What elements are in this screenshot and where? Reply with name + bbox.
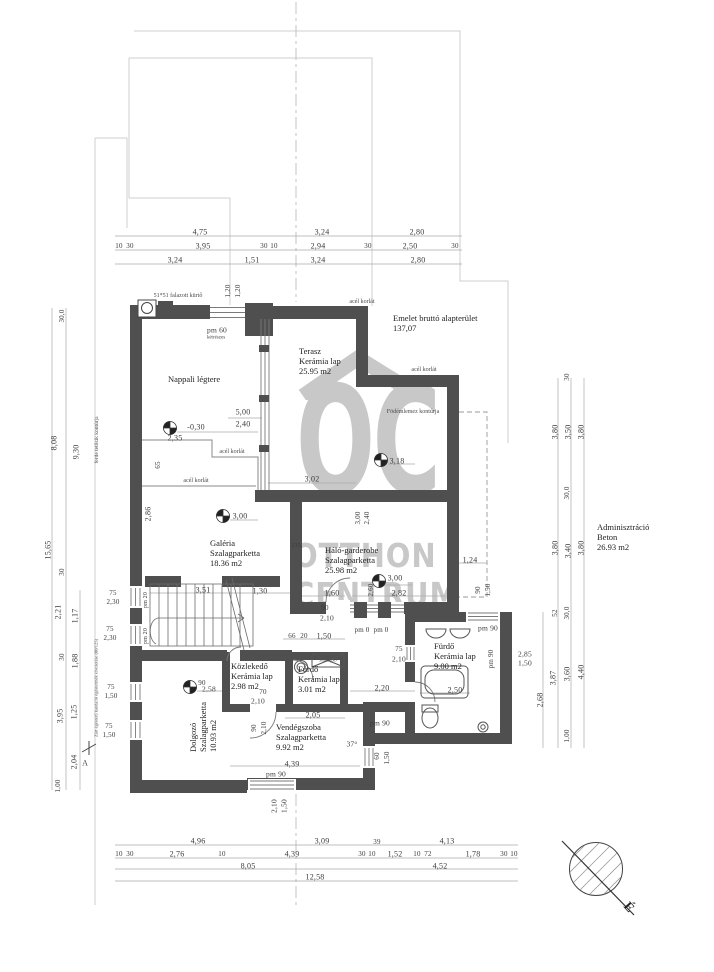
room-label-nappali: Nappali légtere <box>168 374 220 384</box>
dimension-label: 2,50 <box>448 686 463 695</box>
dimension-label: 4,40 <box>577 665 586 680</box>
dimension-label: 1,50 <box>383 751 391 764</box>
dimension-label: 10 <box>115 242 122 250</box>
dimension-label: 3,18 <box>390 457 405 466</box>
dimension-label: 2,05 <box>306 711 321 720</box>
dimension-label: 3,40 <box>564 544 573 559</box>
dimension-label: 15,65 <box>44 541 53 560</box>
sink-icon <box>426 629 446 638</box>
dimension-label: 2,10 <box>320 614 334 623</box>
dimension-label: 2,86 <box>144 507 153 522</box>
dimension-label: 2,80 <box>411 256 426 265</box>
dimension-label: 4,39 <box>285 760 300 769</box>
dimension-label: 10 <box>413 850 420 858</box>
dimension-label: 75 <box>109 589 116 597</box>
annotation-label: A <box>82 759 88 768</box>
dimension-label: 30 <box>500 850 507 858</box>
area-summary: Emelet bruttó alapterület 137,07 <box>393 313 478 333</box>
dimension-label: 4,96 <box>191 837 206 846</box>
dimension-label: 66 <box>288 632 295 640</box>
dimension-label: 72 <box>424 850 431 858</box>
dimension-label: 3,00 <box>388 574 403 583</box>
dimension-label: 75 <box>107 683 114 691</box>
annotation-label: acél korlát <box>183 478 208 484</box>
dimension-label: 2,30 <box>103 634 116 642</box>
dimension-label: 2,50 <box>403 242 418 251</box>
dimension-label: 3,87 <box>549 671 558 686</box>
dimension-label: 30 <box>260 242 267 250</box>
dimension-label: 8,08 <box>50 436 59 451</box>
dimension-label: 3,50 <box>564 425 573 440</box>
dimension-label: 3,09 <box>315 837 330 846</box>
dimension-label: 90 <box>250 724 258 731</box>
dimension-label: 30 <box>364 242 371 250</box>
dimension-label: 1,24 <box>463 556 478 565</box>
annotation-label: acél korlát <box>219 449 244 455</box>
dimension-label: pm 90 <box>370 719 390 728</box>
dimension-label: 30 <box>358 850 365 858</box>
dimension-label: 1,00 <box>563 729 571 742</box>
dimension-label: 30 <box>563 373 571 380</box>
dimension-label: 65 <box>154 461 162 468</box>
dimension-label: 39 <box>373 838 380 846</box>
floor-plan-page: OC OTTHON CENTRUM <box>0 0 714 972</box>
room-label-halo: Háló-garderobe Szalagparketta 25.98 m2 <box>325 545 378 575</box>
annotation-label: acél korlát <box>411 367 436 373</box>
dimension-label: 2,35 <box>168 434 183 443</box>
dimension-label: 4,75 <box>193 228 208 237</box>
dimension-label: 1,51 <box>245 256 260 265</box>
dimension-label: 30 <box>58 653 66 660</box>
room-label-furdo-small: Fürdő Kerámia lap 3.01 m2 <box>298 664 340 694</box>
slab-contour-dashed <box>459 412 487 597</box>
dimension-label: 5,00 <box>236 408 251 417</box>
dimension-label: 10 <box>510 850 517 858</box>
dimension-label: pm 90 <box>266 770 286 779</box>
dimension-label: 3,80 <box>577 541 586 556</box>
dimension-label: 1,78 <box>466 850 481 859</box>
dimension-label: 2,10 <box>251 697 265 706</box>
dimension-label: 1,17 <box>71 609 80 624</box>
floor-plan-drawing <box>0 0 714 972</box>
dimension-label: 3,24 <box>311 256 326 265</box>
dimension-label: 1,30 <box>253 587 268 596</box>
dimension-label: 1,20 <box>224 284 232 297</box>
dimension-label: 2,58 <box>202 685 216 694</box>
dimension-label: 3,02 <box>305 475 320 484</box>
dimension-label: 75 <box>395 645 402 653</box>
dimension-label: 3,24 <box>168 256 183 265</box>
dimension-label: 135 <box>291 543 301 549</box>
dimension-label: pm 20 <box>143 628 149 644</box>
dimension-label: 3,51 <box>196 586 211 595</box>
dimension-label: 75 <box>106 625 113 633</box>
dimension-label: 3,80 <box>551 541 560 556</box>
dimension-label: 3,95 <box>196 242 211 251</box>
dimension-label: 1,50 <box>317 632 332 641</box>
dimension-label: 30,0 <box>563 486 571 499</box>
dimension-label: 4,39 <box>285 850 300 859</box>
dimension-label: 3,95 <box>56 709 65 724</box>
annotation-label: 51*51 falazott kürtő <box>154 293 203 299</box>
dimension-label: 30 <box>126 242 133 250</box>
dimension-label: 3,00 <box>354 511 362 524</box>
dimension-label: 2,82 <box>392 589 407 598</box>
dimension-label: 10 <box>368 850 375 858</box>
dimension-label: 2,94 <box>311 242 326 251</box>
room-label-galeria: Galéria Szalagparketta 18.36 m2 <box>210 538 260 568</box>
room-label-vendegszoba: Vendégszoba Szalagparketta 9.92 m2 <box>276 722 326 752</box>
dimension-label: 2,40 <box>363 511 371 524</box>
dimension-label: 9,30 <box>72 445 81 460</box>
chimney-icon <box>138 300 156 317</box>
dimension-label: 2,60 <box>367 583 375 596</box>
annotation-label: Zárt égésterű kandalló égéstermék elveze… <box>94 639 99 737</box>
room-label-kozlekedo: Közlekedő Kerámia lap 2.98 m2 <box>231 661 273 691</box>
section-mark <box>82 741 96 755</box>
dimension-label: pm 90 <box>478 624 498 633</box>
dimension-label: 1,50 <box>280 799 289 813</box>
dimension-label: 2,85 <box>518 650 532 659</box>
annotation-label: ferde tetősík kontúrja <box>94 416 100 463</box>
dimension-label: 3,80 <box>551 425 560 440</box>
dimension-label: 2,21 <box>54 605 63 620</box>
room-label-dolgozo: Dolgozó Szalagparketta 10.93 m2 <box>188 702 218 752</box>
dimension-label: 3,24 <box>315 228 330 237</box>
annotation-label: kétrészes <box>207 336 225 341</box>
annotation-label: acél korlát <box>349 299 374 305</box>
dimension-label: 12,58 <box>306 873 325 882</box>
dimension-label: 1,50 <box>102 731 115 739</box>
dimension-label: 37° <box>346 740 357 749</box>
dimension-label: 1,25 <box>70 705 79 720</box>
dimension-label: -0,30 <box>187 423 205 432</box>
dimension-label: 10 <box>218 850 225 858</box>
dimension-label: 30,0 <box>58 309 66 322</box>
dimension-label: pm 20 <box>143 592 149 608</box>
dimension-label: 30 <box>126 850 133 858</box>
dimension-label: 3,00 <box>233 512 248 521</box>
dimension-label: pm 0 <box>374 626 389 634</box>
drain-icon <box>478 722 488 732</box>
room-label-adminisztracio: Adminisztráció Beton 26.93 m2 <box>597 522 649 552</box>
dimension-label: 2,20 <box>375 684 390 693</box>
dimension-label: 2,80 <box>410 228 425 237</box>
dimension-label: pm 0 <box>355 626 370 634</box>
toilet-icon <box>422 708 438 728</box>
dimension-label: 8,05 <box>241 862 256 871</box>
dimension-label: 60 <box>373 752 381 759</box>
north-arrow-icon <box>562 834 634 915</box>
dimension-label: 2,10 <box>392 655 406 664</box>
room-label-terasz: Terasz Kerámia lap 25.95 m2 <box>299 346 341 376</box>
room-label-furdo-big: Fürdő Kerámia lap 9.00 m2 <box>434 641 476 671</box>
dimension-label: 1,20 <box>234 284 242 297</box>
dimension-label: 2,10 <box>260 721 268 734</box>
dimension-label: 1,50 <box>484 583 492 596</box>
annotation-label: zuhanyzó <box>319 658 336 663</box>
dimension-label: 2,04 <box>70 755 79 770</box>
dimension-label: pm 90 <box>487 650 495 669</box>
dimension-label: 4,52 <box>433 862 448 871</box>
dimension-label: 2,30 <box>106 598 119 606</box>
annotation-label: Födémlemez kontúrja <box>387 409 440 415</box>
dimension-label: 30 <box>58 568 66 575</box>
dimension-label: 1,50 <box>518 659 532 668</box>
dimension-label: 52 <box>551 609 559 616</box>
dimension-label: 2,40 <box>236 420 251 429</box>
dimension-label: 3,60 <box>563 667 572 682</box>
dimension-label: 2,68 <box>536 693 545 708</box>
dimension-label: 3,80 <box>577 425 586 440</box>
dimension-label: 1,52 <box>388 850 403 859</box>
dimension-label: 90 <box>321 604 328 612</box>
dimension-label: 1,50 <box>104 692 117 700</box>
dimension-label: pm 60 <box>207 326 227 335</box>
sink-icon <box>450 629 470 638</box>
dimension-label: 30 <box>451 242 458 250</box>
dimension-label: 10 <box>115 850 122 858</box>
dimension-label: 90 <box>474 586 482 593</box>
dimension-label: 1,00 <box>54 779 62 792</box>
dimension-label: 1,60 <box>325 589 340 598</box>
dimension-label: 4,13 <box>440 837 455 846</box>
dimension-label: 2,10 <box>270 799 279 813</box>
dimension-label: 75 <box>105 722 112 730</box>
dimension-label: 30,0 <box>563 606 571 619</box>
dimension-label: 10 <box>270 242 277 250</box>
dimension-label: 1,88 <box>71 654 80 669</box>
dimension-label: 20 <box>300 632 307 640</box>
dimension-label: 2,76 <box>170 850 185 859</box>
